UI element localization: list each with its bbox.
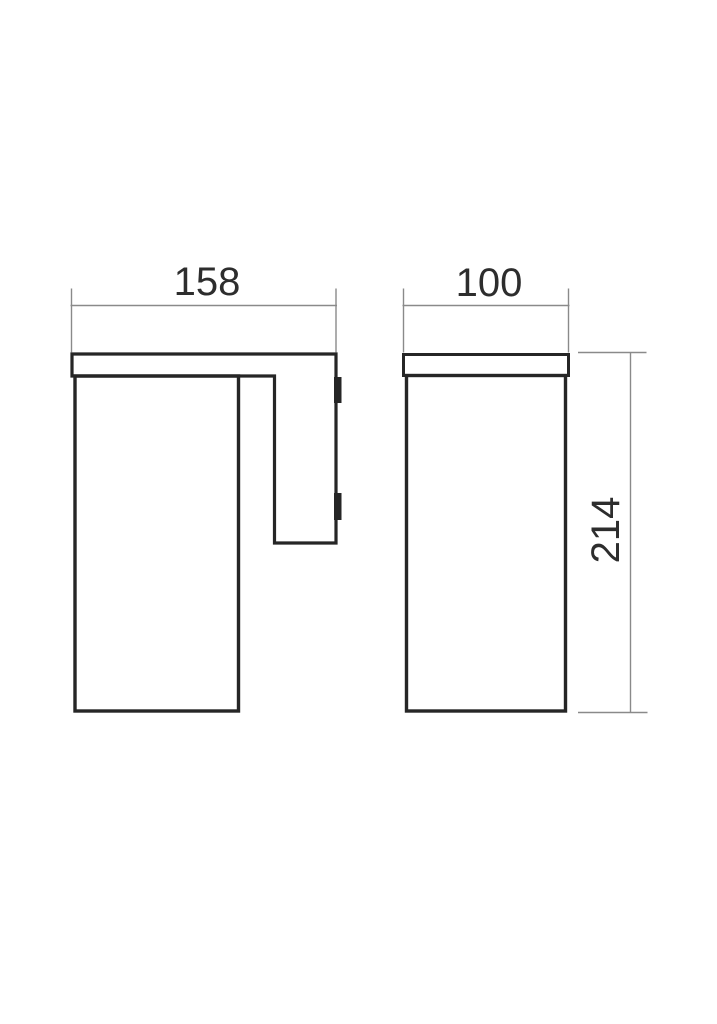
mounting-tab-top	[334, 377, 342, 403]
front-view-body-outline	[407, 376, 566, 712]
side-view-plate-and-bracket-outline	[72, 354, 336, 543]
side-view-body-outline	[75, 376, 239, 711]
dimension-label-overall-height: 214	[586, 497, 626, 564]
side-view-drawing	[72, 354, 342, 711]
dimension-lines	[71, 289, 648, 713]
front-view-drawing	[404, 355, 569, 712]
dimension-label-side-width: 158	[174, 262, 241, 302]
drawing-canvas: 158 100 214	[0, 0, 717, 1024]
front-view-cap-outline	[404, 355, 569, 376]
dimension-label-front-width: 100	[456, 263, 523, 303]
mounting-tab-bottom	[334, 493, 342, 520]
